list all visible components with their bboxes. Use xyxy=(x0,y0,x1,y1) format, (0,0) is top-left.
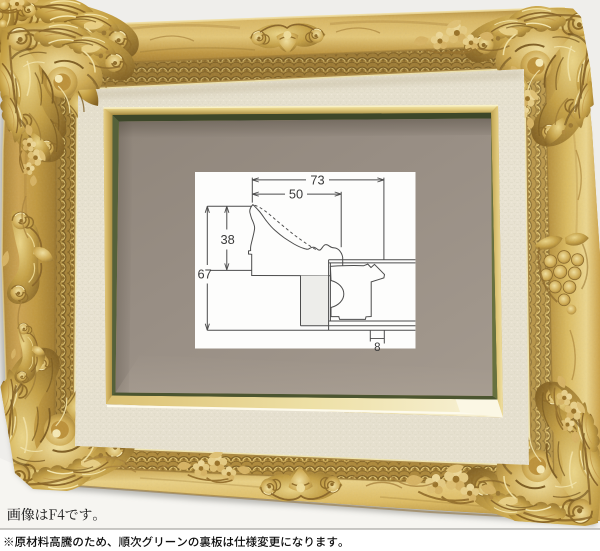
svg-text:67: 67 xyxy=(197,267,211,282)
svg-text:8: 8 xyxy=(374,342,380,354)
svg-text:38: 38 xyxy=(220,232,234,247)
svg-text:73: 73 xyxy=(310,172,324,187)
svg-text:50: 50 xyxy=(289,187,303,202)
